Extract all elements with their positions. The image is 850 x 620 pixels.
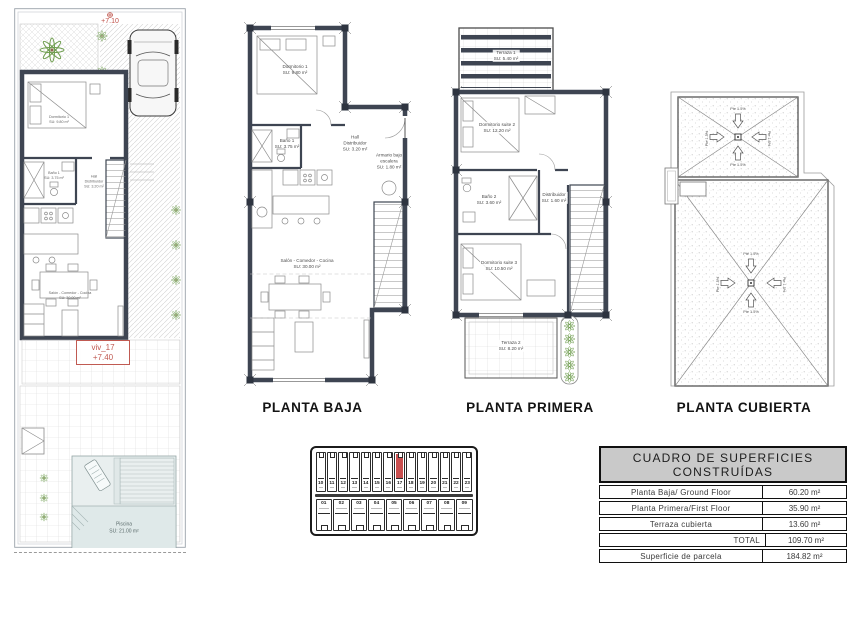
- room-label-hall: Hall Distribuidor SU: 3.20 m²: [343, 135, 368, 154]
- unit-cell-16: 16: [383, 452, 393, 493]
- site-room-label-salon: Salón - Comedor - Cocina SU: 30.00 m²: [49, 291, 92, 301]
- room-label-bano2: Baño 2 SU: 3.60 m²: [476, 194, 503, 206]
- slope-label: Pte 1.5%: [705, 130, 709, 146]
- room-label-bano1: Baño 1 SU: 3.75 m²: [275, 138, 300, 150]
- planta-primera-drawing: [451, 22, 616, 392]
- planta-cubierta-title: PLANTA CUBIERTA: [655, 400, 833, 415]
- slope-label: Pte 1.5%: [767, 131, 771, 147]
- unit-cell-04: 04: [368, 499, 385, 530]
- unit-cell-10: 10: [316, 452, 326, 493]
- unit-cell-02: 02: [333, 499, 350, 530]
- slope-label: Pte 1.5%: [743, 252, 759, 256]
- table-row: Planta Primera/First Floor 35.90 m²: [599, 501, 847, 515]
- room-label-suite2: Dormitorio suite 2 SU: 12.20 m²: [478, 122, 516, 134]
- benchmark-icon: [107, 13, 113, 18]
- slope-label: Pte 1.5%: [730, 107, 746, 111]
- room-label-armario: Armario bajo escalera SU: 1.80 m²: [376, 153, 402, 172]
- unit-cell-06: 06: [403, 499, 420, 530]
- room-label-suite3: Dormitorio suite 3 SU: 10.50 m²: [480, 260, 518, 272]
- slope-label: Pte 1.5%: [782, 277, 786, 293]
- slope-label: Pte 1.5%: [730, 163, 746, 167]
- table-row: Superficie de parcela 184.82 m²: [599, 549, 847, 563]
- room-label-salon: Salón - Comedor - Cocina SU: 30.00 m²: [280, 258, 333, 270]
- plan-sheet: +7.10 Dormitorio 1 SU: 9.80 m² Baño 1 SU…: [0, 0, 850, 620]
- planta-cubierta-plan: Pte 1.5% Pte 1.5% Pte 1.5% Pte 1.5% Pte …: [663, 90, 843, 390]
- key-plan-top-row: 10 11 12 13 14 15 16 17 18 19 20 21 22 2…: [315, 451, 473, 493]
- unit-cell-13: 13: [349, 452, 359, 493]
- site-plan-drawing: [14, 8, 186, 548]
- room-label-distribuidor: Distribuidor SU: 1.60 m²: [541, 192, 568, 204]
- unit-cell-03: 03: [351, 499, 368, 530]
- planta-baja-drawing: [243, 22, 413, 392]
- planta-cubierta-drawing: Pte 1.5% Pte 1.5% Pte 1.5% Pte 1.5% Pte …: [663, 90, 843, 390]
- key-plan-street: [315, 494, 473, 497]
- unit-cell-07: 07: [421, 499, 438, 530]
- site-room-label-hall: Hall Distribuidor SU: 3.20 m²: [84, 175, 104, 190]
- room-label-terraza2: Terraza 2 SU: 8.20 m²: [498, 340, 525, 352]
- site-room-label-bano1: Baño 1 SU: 3.75 m²: [44, 171, 64, 181]
- unit-cell-05: 05: [386, 499, 403, 530]
- unit-tag: viv_17 +7.40: [76, 340, 130, 365]
- unit-cell-23: 23: [462, 452, 472, 493]
- planta-primera-title: PLANTA PRIMERA: [445, 400, 615, 415]
- areas-table: CUADRO DE SUPERFICIES CONSTRUÍDAS Planta…: [599, 446, 847, 565]
- planta-baja-title: PLANTA BAJA: [230, 400, 395, 415]
- room-label-dormitorio1: Dormitorio 1 SU: 9.80 m²: [282, 64, 307, 76]
- key-plan-bottom-row: 01 02 03 04 05 06 07 08 09: [315, 499, 473, 531]
- unit-cell-14: 14: [361, 452, 371, 493]
- site-key-plan: 10 11 12 13 14 15 16 17 18 19 20 21 22 2…: [310, 446, 478, 536]
- unit-cell-08: 08: [438, 499, 455, 530]
- unit-cell-11: 11: [327, 452, 337, 493]
- unit-cell-12: 12: [338, 452, 348, 493]
- plot-front-line: [14, 552, 186, 553]
- unit-cell-18: 18: [406, 452, 416, 493]
- unit-cell-15: 15: [372, 452, 382, 493]
- car-icon: [128, 30, 179, 116]
- benchmark-elevation: +7.10: [101, 18, 119, 25]
- slope-label: Pte 1.5%: [716, 276, 720, 292]
- unit-cell-01: 01: [316, 499, 333, 530]
- table-row: Terraza cubierta 13.60 m²: [599, 517, 847, 531]
- planta-baja-plan: Dormitorio 1 SU: 9.80 m² Baño 1 SU: 3.75…: [243, 22, 413, 392]
- unit-cell-20: 20: [428, 452, 438, 493]
- planta-primera-plan: Terraza 1 SU: 5.40 m² Dormitorio suite 2…: [451, 22, 616, 392]
- unit-cell-19: 19: [417, 452, 427, 493]
- table-row: Planta Baja/ Ground Floor 60.20 m²: [599, 485, 847, 499]
- room-label-terraza1: Terraza 1 SU: 5.40 m²: [493, 50, 520, 62]
- unit-cell-22: 22: [451, 452, 461, 493]
- site-room-label-dormitorio1: Dormitorio 1 SU: 9.80 m²: [49, 115, 69, 125]
- slope-label: Pte 1.5%: [743, 310, 759, 314]
- site-plan: +7.10 Dormitorio 1 SU: 9.80 m² Baño 1 SU…: [14, 8, 186, 548]
- areas-table-title: CUADRO DE SUPERFICIES CONSTRUÍDAS: [599, 446, 847, 483]
- unit-cell-09: 09: [456, 499, 473, 530]
- table-row-total: TOTAL 109.70 m²: [599, 533, 847, 547]
- unit-cell-17-highlighted: 17: [394, 452, 404, 493]
- unit-cell-21: 21: [440, 452, 450, 493]
- pool-label: Piscina SU: 21.00 m²: [109, 521, 138, 535]
